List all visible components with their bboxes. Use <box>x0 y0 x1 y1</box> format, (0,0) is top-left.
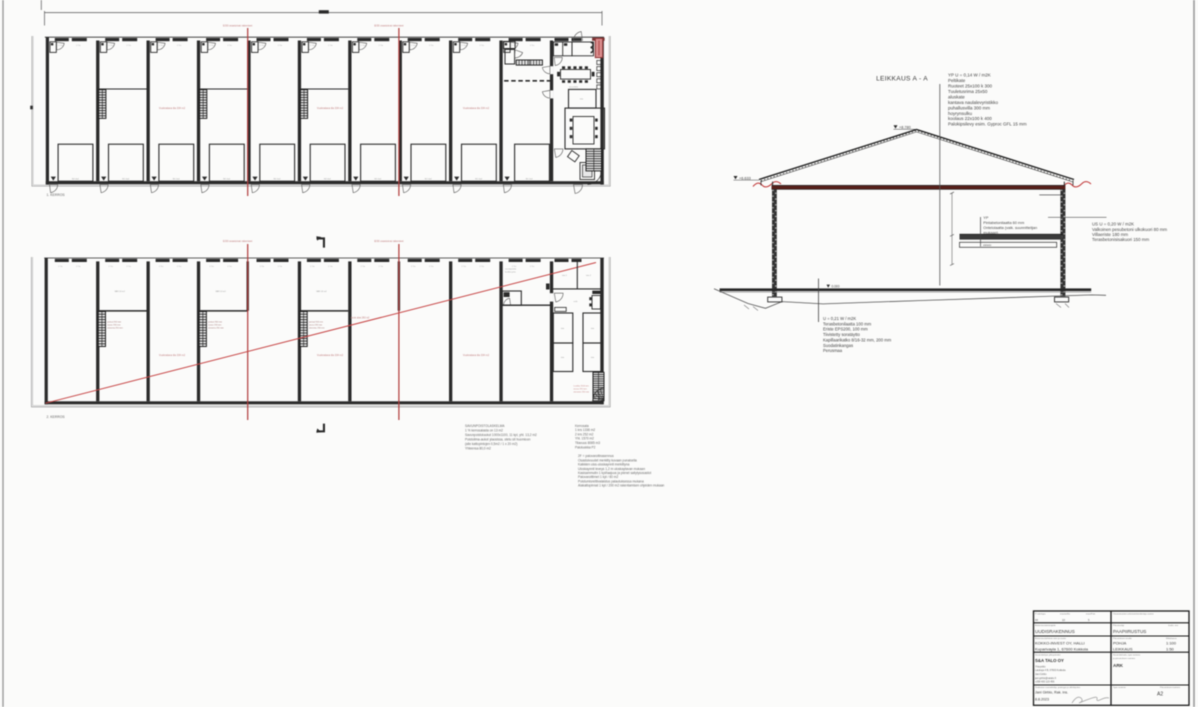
svg-text:nousu 190 mm: nousu 190 mm <box>208 325 222 327</box>
svg-text:2 7m: 2 7m <box>159 45 164 47</box>
svg-text:NO 4x4: NO 4x4 <box>173 178 181 180</box>
svg-text:Savunpoistoluukut 1000x1100, 1: Savunpoistoluukut 1000x1100, 11 kpl, yht… <box>465 433 537 437</box>
svg-text:savunpoisto: savunpoisto <box>505 268 517 271</box>
svg-text:mukaan): mukaan) <box>983 231 999 235</box>
svg-text:Suunnittelijan yhteystiedot: Suunnittelijan yhteystiedot <box>1035 654 1061 657</box>
svg-text:etenemä 250 mm: etenemä 250 mm <box>574 391 590 394</box>
svg-text:2 7m: 2 7m <box>379 45 384 47</box>
svg-text:Terasbetonisisakuori 150 mm: Terasbetonisisakuori 150 mm <box>1092 237 1149 242</box>
svg-text:Eriste EPS200, 100 mm: Eriste EPS200, 100 mm <box>823 327 868 332</box>
svg-text:2 7m: 2 7m <box>530 266 535 268</box>
svg-text:P raknlupa: P raknlupa <box>1035 613 1046 616</box>
svg-text:A2: A2 <box>1157 691 1163 697</box>
svg-text:VAR 24 m2: VAR 24 m2 <box>316 290 327 293</box>
svg-text:Jani Girblo: Jani Girblo <box>1035 673 1047 676</box>
svg-text:Jani Girblo, Rak. ins.: Jani Girblo, Rak. ins. <box>1035 690 1068 694</box>
svg-text:2 7m: 2 7m <box>58 266 63 268</box>
svg-text:Tyon numero: Tyon numero <box>1113 686 1127 689</box>
svg-text:PAAPIIRUSTUS: PAAPIIRUSTUS <box>1113 629 1146 634</box>
svg-text:YP U = 0,14 W / m2K: YP U = 0,14 W / m2K <box>948 73 991 78</box>
svg-text:Tiedoston suunnittelija, patev: Tiedoston suunnittelija, patevyys ja all… <box>1035 686 1081 689</box>
svg-text:portaat 900 mm: portaat 900 mm <box>107 321 121 324</box>
svg-text:Ontelolaatta (valk. suunnittel: Ontelolaatta (valk. suunnittelijan <box>983 226 1037 230</box>
svg-text:2 7m: 2 7m <box>530 45 535 47</box>
svg-text:hoyrynsulku: hoyrynsulku <box>948 111 973 116</box>
svg-text:+358 400 123 456: +358 400 123 456 <box>1035 681 1055 684</box>
svg-text:2 7m: 2 7m <box>328 266 333 268</box>
svg-text:kantava naulalevyristikko: kantava naulalevyristikko <box>948 100 999 105</box>
svg-text:Suodatinkangas: Suodatinkangas <box>823 343 853 348</box>
svg-text:2 7m: 2 7m <box>310 45 315 47</box>
svg-text:2 7m: 2 7m <box>159 266 164 268</box>
svg-text:Vuokrattava tila 334 m2: Vuokrattava tila 334 m2 <box>463 107 490 110</box>
svg-text:2 7m: 2 7m <box>126 45 131 47</box>
svg-text:NO 4x4: NO 4x4 <box>72 178 80 180</box>
svg-text:luukku yms.: luukku yms. <box>505 271 516 273</box>
svg-text:muutPvm: muutPvm <box>1086 613 1095 616</box>
svg-text:nousu 190 mm: nousu 190 mm <box>107 325 121 327</box>
svg-text:NO 4x4: NO 4x4 <box>425 178 433 180</box>
svg-text:2 7m: 2 7m <box>209 266 214 268</box>
svg-text:1. KERROS: 1. KERROS <box>47 193 66 197</box>
svg-text:2 7m: 2 7m <box>512 45 517 47</box>
svg-text:etenema 250 mm: etenema 250 mm <box>309 327 325 330</box>
svg-text:2 7m: 2 7m <box>126 266 131 268</box>
svg-text:2 7m: 2 7m <box>76 266 81 268</box>
svg-text:Peltikate: Peltikate <box>948 78 966 83</box>
svg-text:Perusmaa: Perusmaa <box>823 348 843 353</box>
svg-text:Tuuletusrima 25x50: Tuuletusrima 25x50 <box>948 89 988 94</box>
svg-text:Poistoilma-aukot ylaosissa, ot: Poistoilma-aukot ylaosissa, otetu sit hu… <box>465 437 531 441</box>
svg-text:2 7m: 2 7m <box>260 266 265 268</box>
svg-text:VAR 24 m2: VAR 24 m2 <box>215 290 226 293</box>
svg-text:Piirustuslaji: Piirustuslaji <box>1113 624 1125 627</box>
svg-text:+6.633: +6.633 <box>739 176 751 180</box>
svg-text:portaat 900 mm: portaat 900 mm <box>208 321 222 324</box>
svg-text:2 7m: 2 7m <box>58 45 63 47</box>
svg-text:neuvottelu: neuvottelu <box>569 86 578 89</box>
svg-text:Tiivistetty soratäytto: Tiivistetty soratäytto <box>823 332 861 337</box>
svg-text:2 7m: 2 7m <box>278 266 283 268</box>
svg-text:2 7m: 2 7m <box>278 45 283 47</box>
svg-text:Vuokrattava tila 334 m2: Vuokrattava tila 334 m2 <box>463 354 490 357</box>
svg-text:Kuparivayla 1, 67600 Kokkola: Kuparivayla 1, 67600 Kokkola <box>1035 647 1089 652</box>
svg-text:alakatto: alakatto <box>983 244 992 247</box>
svg-text:(alle kattopintojen 0,5m2 / 1: (alle kattopintojen 0,5m2 / 1 x 20 m2) <box>465 442 517 446</box>
svg-text:2. KERROS: 2. KERROS <box>47 415 66 419</box>
svg-text:Pintabetonilaatta 60 mm: Pintabetonilaatta 60 mm <box>983 221 1024 225</box>
svg-text:2 7m: 2 7m <box>260 45 265 47</box>
svg-text:Vuokrattava tila 334 m2: Vuokrattava tila 334 m2 <box>159 107 186 110</box>
svg-text:portaat 900 mm: portaat 900 mm <box>309 321 323 324</box>
svg-text:YP: YP <box>983 216 989 220</box>
svg-text:NO 4x4: NO 4x4 <box>274 178 282 180</box>
svg-text:Yhteensa 80,0 m2: Yhteensa 80,0 m2 <box>465 447 491 451</box>
svg-text:Luokka 1500 mm: Luokka 1500 mm <box>574 386 590 388</box>
svg-text:SAVUNPOISTOLASKELMA: SAVUNPOISTOLASKELMA <box>465 424 505 428</box>
svg-text:puhallusvilla 300 mm: puhallusvilla 300 mm <box>948 105 990 110</box>
svg-text:EI30 osastoivat rakenteet: EI30 osastoivat rakenteet <box>223 23 253 27</box>
svg-text:Vuokrattava tila 334 m2: Vuokrattava tila 334 m2 <box>159 354 186 357</box>
svg-text:2 7m: 2 7m <box>108 45 113 47</box>
svg-text:2 7m: 2 7m <box>379 266 384 268</box>
svg-text:nousu 190 mm: nousu 190 mm <box>574 389 588 391</box>
svg-text:Vuokrattava tila 334 m2: Vuokrattava tila 334 m2 <box>317 354 344 357</box>
svg-text:2 7m: 2 7m <box>361 45 366 47</box>
svg-text:EI30 osastoivat rakenteet: EI30 osastoivat rakenteet <box>374 23 404 27</box>
svg-text:Kapillaarikatko 8/16-32 mm, 20: Kapillaarikatko 8/16-32 mm, 200 mm <box>823 337 892 342</box>
svg-text:Vuokrattava tila 334 m2: Vuokrattava tila 334 m2 <box>317 107 344 110</box>
svg-text:2 7m: 2 7m <box>227 266 232 268</box>
svg-text:2 7m: 2 7m <box>361 266 366 268</box>
svg-text:koolaus 22x100 k 400: koolaus 22x100 k 400 <box>948 116 992 121</box>
svg-text:UUDISRAKENNUS: UUDISRAKENNUS <box>1035 629 1075 634</box>
svg-text:Rakennustoimenpide: Rakennustoimenpide <box>1035 624 1056 627</box>
svg-text:2 7m: 2 7m <box>328 45 333 47</box>
svg-text:POHJA: POHJA <box>1113 641 1127 646</box>
svg-text:+8.780: +8.780 <box>899 126 911 130</box>
svg-text:2 7m: 2 7m <box>177 266 182 268</box>
svg-text:Latokuja 4 B, 67600 Kokkola: Latokuja 4 B, 67600 Kokkola <box>1035 669 1066 672</box>
svg-text:ARK: ARK <box>1113 663 1124 668</box>
svg-text:2 7m: 2 7m <box>461 266 466 268</box>
svg-text:etenema 250 mm: etenema 250 mm <box>208 327 224 330</box>
svg-text:2 7m: 2 7m <box>411 266 416 268</box>
svg-text:etenema 250 mm: etenema 250 mm <box>107 327 123 330</box>
svg-text:avoin alas 260 m2: avoin alas 260 m2 <box>351 318 370 320</box>
svg-text:1:100: 1:100 <box>1166 641 1177 646</box>
svg-text:EI30 osastoivat rakenteet: EI30 osastoivat rakenteet <box>223 239 253 243</box>
svg-text:1:50: 1:50 <box>1166 647 1175 652</box>
svg-text:Alakattopinnat 1 kpl / 200 m2: Alakattopinnat 1 kpl / 200 m2 rakentamis… <box>578 484 665 488</box>
svg-text:NO 4x4: NO 4x4 <box>374 178 382 180</box>
svg-text:Piirustuksen numero: Piirustuksen numero <box>1160 686 1181 689</box>
svg-text:2 7m: 2 7m <box>227 45 232 47</box>
svg-text:2 7m: 2 7m <box>479 266 484 268</box>
svg-text:2 7m: 2 7m <box>479 45 484 47</box>
svg-text:Terasbetonilaatta 100 mm: Terasbetonilaatta 100 mm <box>823 321 872 326</box>
svg-text:2 7m: 2 7m <box>76 45 81 47</box>
svg-text:LEIKKAUS: LEIKKAUS <box>1113 647 1133 652</box>
svg-text:ja piirustuksen numero: ja piirustuksen numero <box>1112 657 1136 660</box>
svg-text:2 7m: 2 7m <box>177 45 182 47</box>
svg-text:KOKKO-INVEST OY, HALLI: KOKKO-INVEST OY, HALLI <box>1035 641 1085 646</box>
svg-text:Suunnitteluala, tyon numero: Suunnitteluala, tyon numero <box>1113 654 1141 657</box>
svg-text:2 7m: 2 7m <box>429 266 434 268</box>
svg-text:Palokipsilevy esim. Gyproc GFL: Palokipsilevy esim. Gyproc GFL 15 mm <box>948 122 1027 127</box>
svg-text:aluskate: aluskate <box>948 94 965 99</box>
svg-text:S&A TALO OY: S&A TALO OY <box>1035 658 1064 663</box>
svg-text:Ruoteet 25x100 k 300: Ruoteet 25x100 k 300 <box>948 84 993 89</box>
svg-text:2 7m: 2 7m <box>209 45 214 47</box>
svg-text:NO 4x4: NO 4x4 <box>526 178 534 180</box>
svg-text:2 7m: 2 7m <box>411 45 416 47</box>
svg-text:jani.girblo@satalo.fi: jani.girblo@satalo.fi <box>1034 677 1056 680</box>
svg-text:0.000: 0.000 <box>832 285 840 289</box>
svg-text:EI30 osastoivat rakenteet: EI30 osastoivat rakenteet <box>374 239 404 243</box>
svg-text:2 7m: 2 7m <box>310 266 315 268</box>
svg-text:LEIKKAUS A - A: LEIKKAUS A - A <box>876 76 928 83</box>
svg-text:2 7m: 2 7m <box>461 45 466 47</box>
svg-text:2 7m: 2 7m <box>108 266 113 268</box>
svg-text:Viranomaisten arkistointimerki: Viranomaisten arkistointimerkintoja vart… <box>1113 613 1154 616</box>
svg-text:Yhteyshlo: Yhteyshlo <box>1035 665 1046 668</box>
svg-text:U = 0,21 W / m2K: U = 0,21 W / m2K <box>823 316 856 321</box>
svg-text:1 % kerrosalasta on 13 m2: 1 % kerrosalasta on 13 m2 <box>465 428 503 432</box>
svg-text:2 7m: 2 7m <box>429 45 434 47</box>
svg-text:8.8.2023: 8.8.2023 <box>1035 698 1049 702</box>
svg-text:nousu 190 mm: nousu 190 mm <box>309 325 323 327</box>
svg-text:VAR 24 m2: VAR 24 m2 <box>114 290 125 293</box>
svg-text:NO 4x4: NO 4x4 <box>223 178 231 180</box>
svg-text:Juoks. nro: Juoks. nro <box>1168 624 1179 627</box>
svg-text:muutosNo: muutosNo <box>1060 613 1071 616</box>
svg-text:NO 4x4: NO 4x4 <box>122 178 130 180</box>
svg-text:Paloluokka P2: Paloluokka P2 <box>575 445 596 449</box>
svg-text:NO 4x4: NO 4x4 <box>475 178 483 180</box>
svg-text:NO 4x4: NO 4x4 <box>324 178 332 180</box>
